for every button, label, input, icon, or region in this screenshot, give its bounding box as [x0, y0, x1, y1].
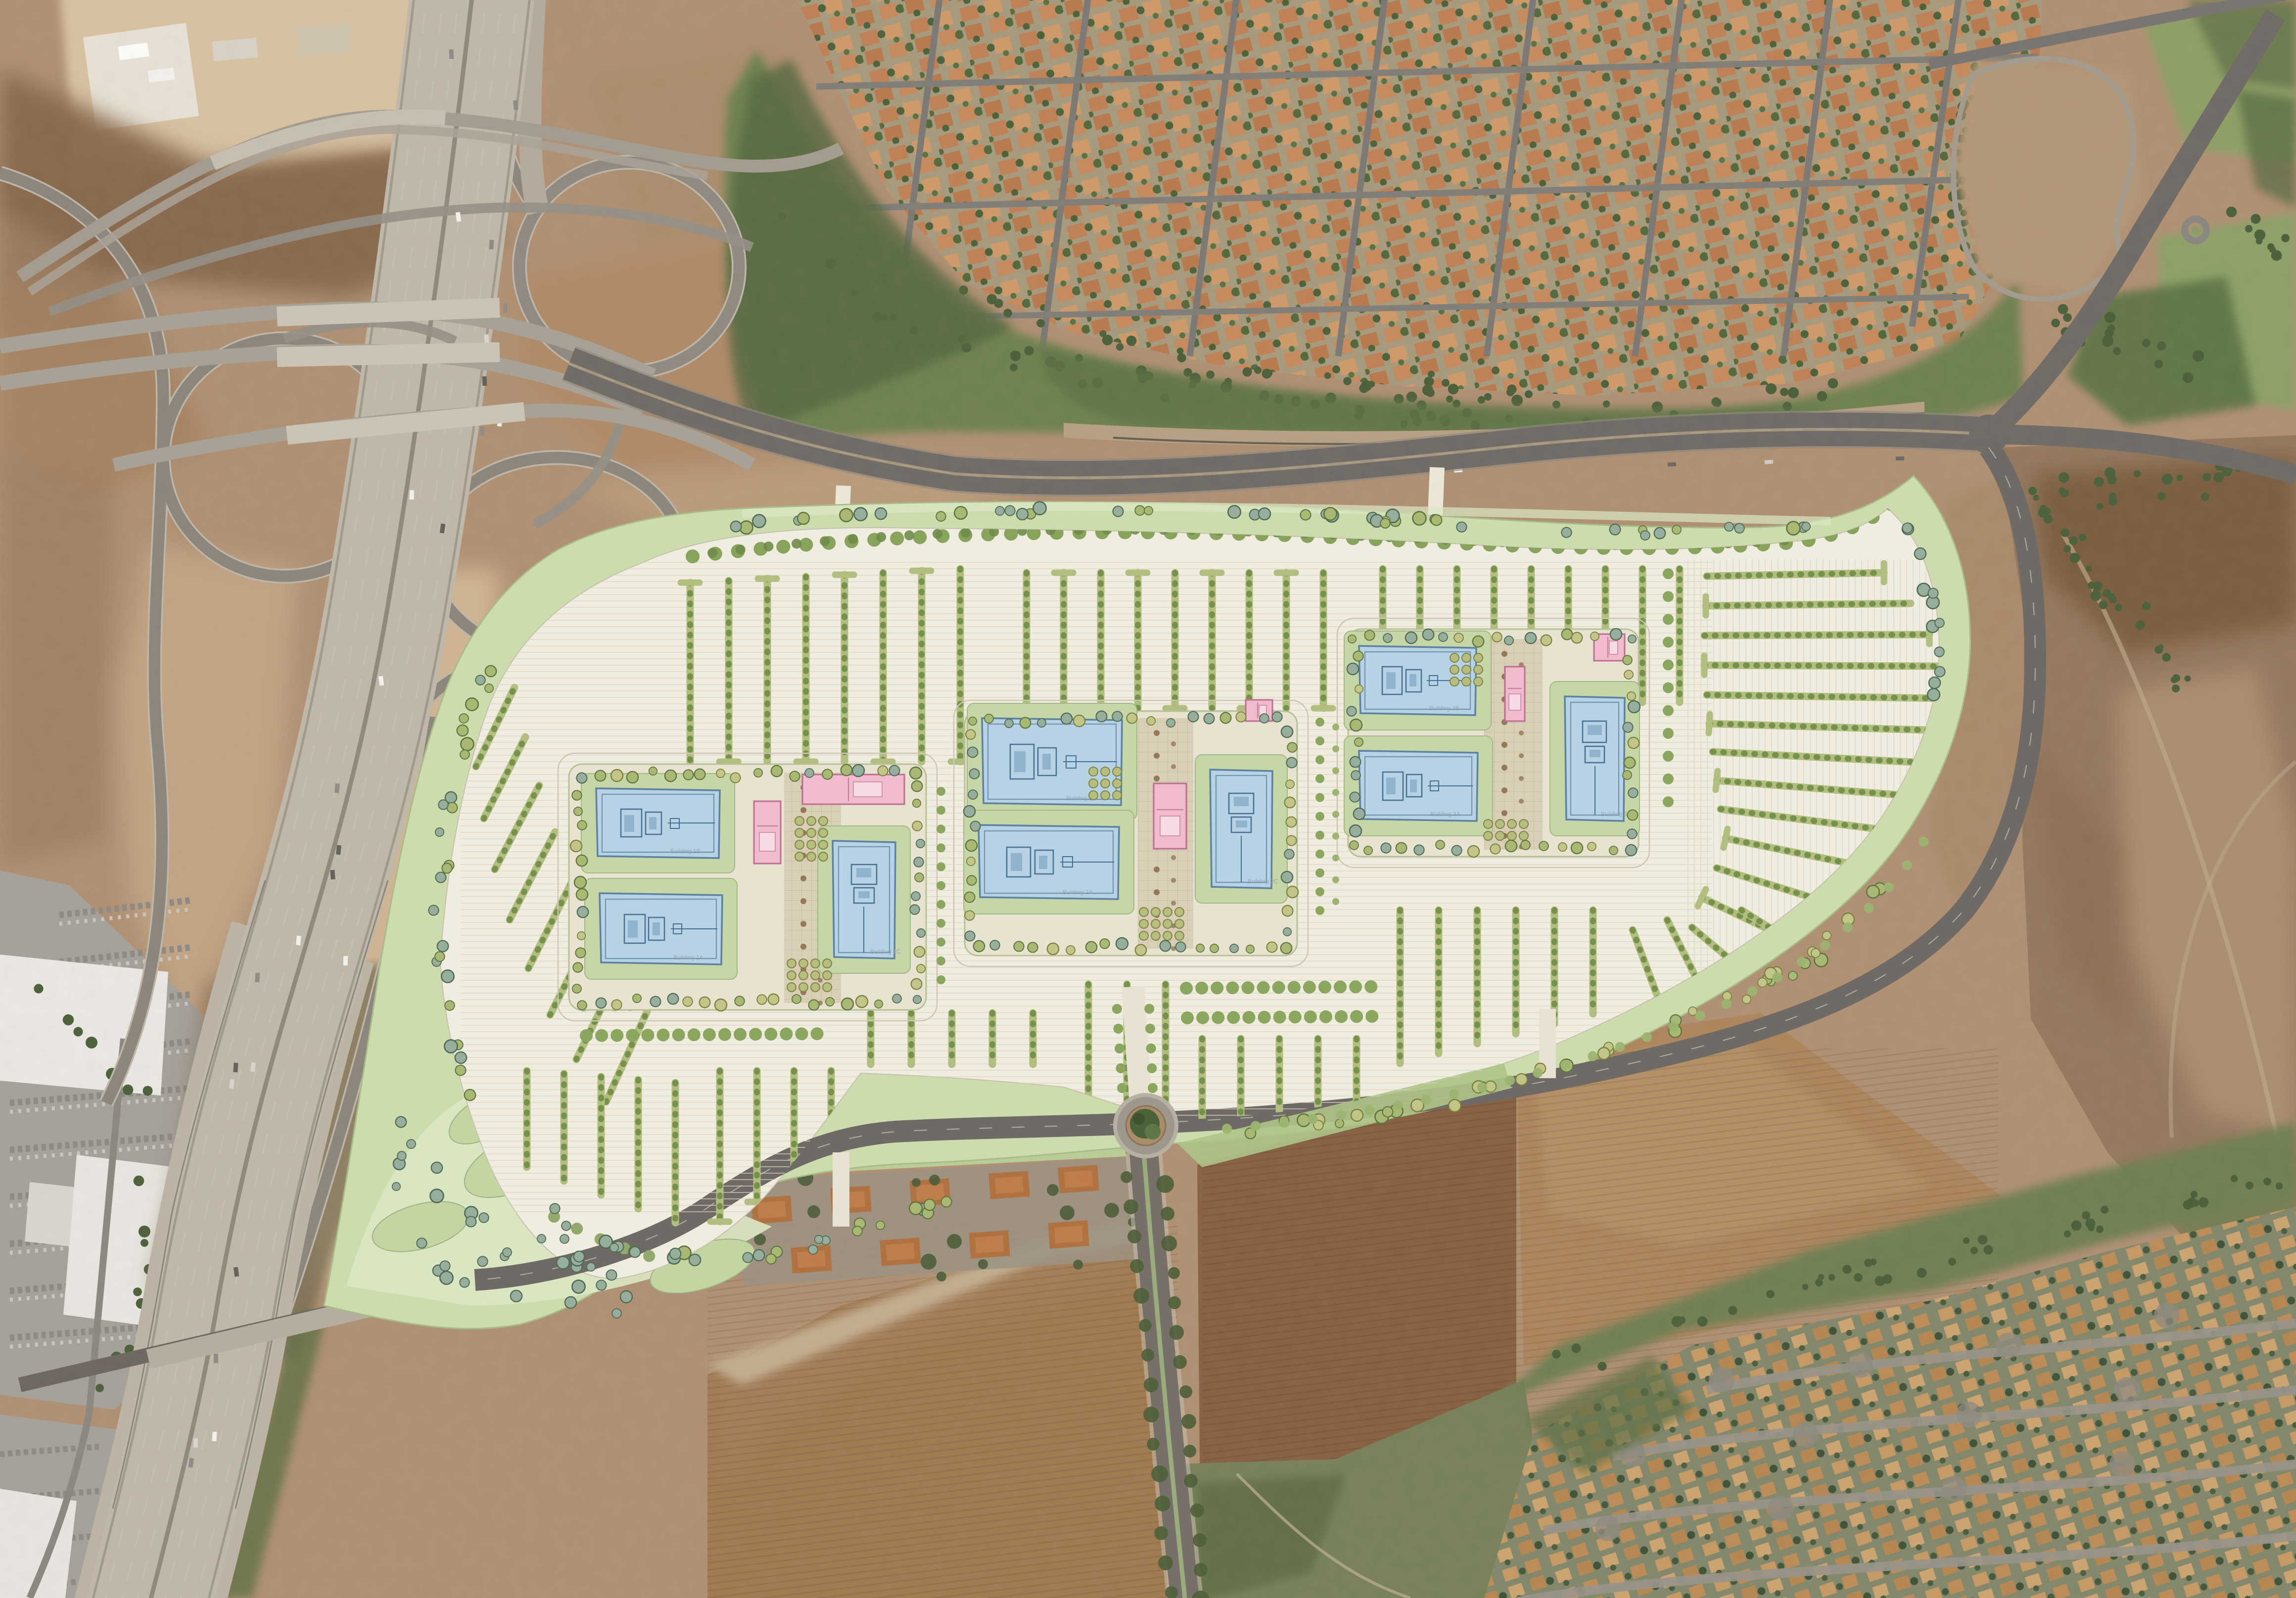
svg-text:Building 1A: Building 1A — [673, 954, 703, 961]
svg-text:Building 3A: Building 3A — [1430, 811, 1460, 818]
svg-text:Building 2A: Building 2A — [1063, 889, 1093, 896]
svg-text:Building 3C: Building 3C — [1601, 811, 1632, 818]
svg-text:Building 1C: Building 1C — [870, 948, 901, 955]
svg-text:Building 2C: Building 2C — [1248, 878, 1278, 885]
svg-text:Building 1B: Building 1B — [670, 848, 701, 855]
svg-text:Building 3B: Building 3B — [1429, 705, 1459, 712]
